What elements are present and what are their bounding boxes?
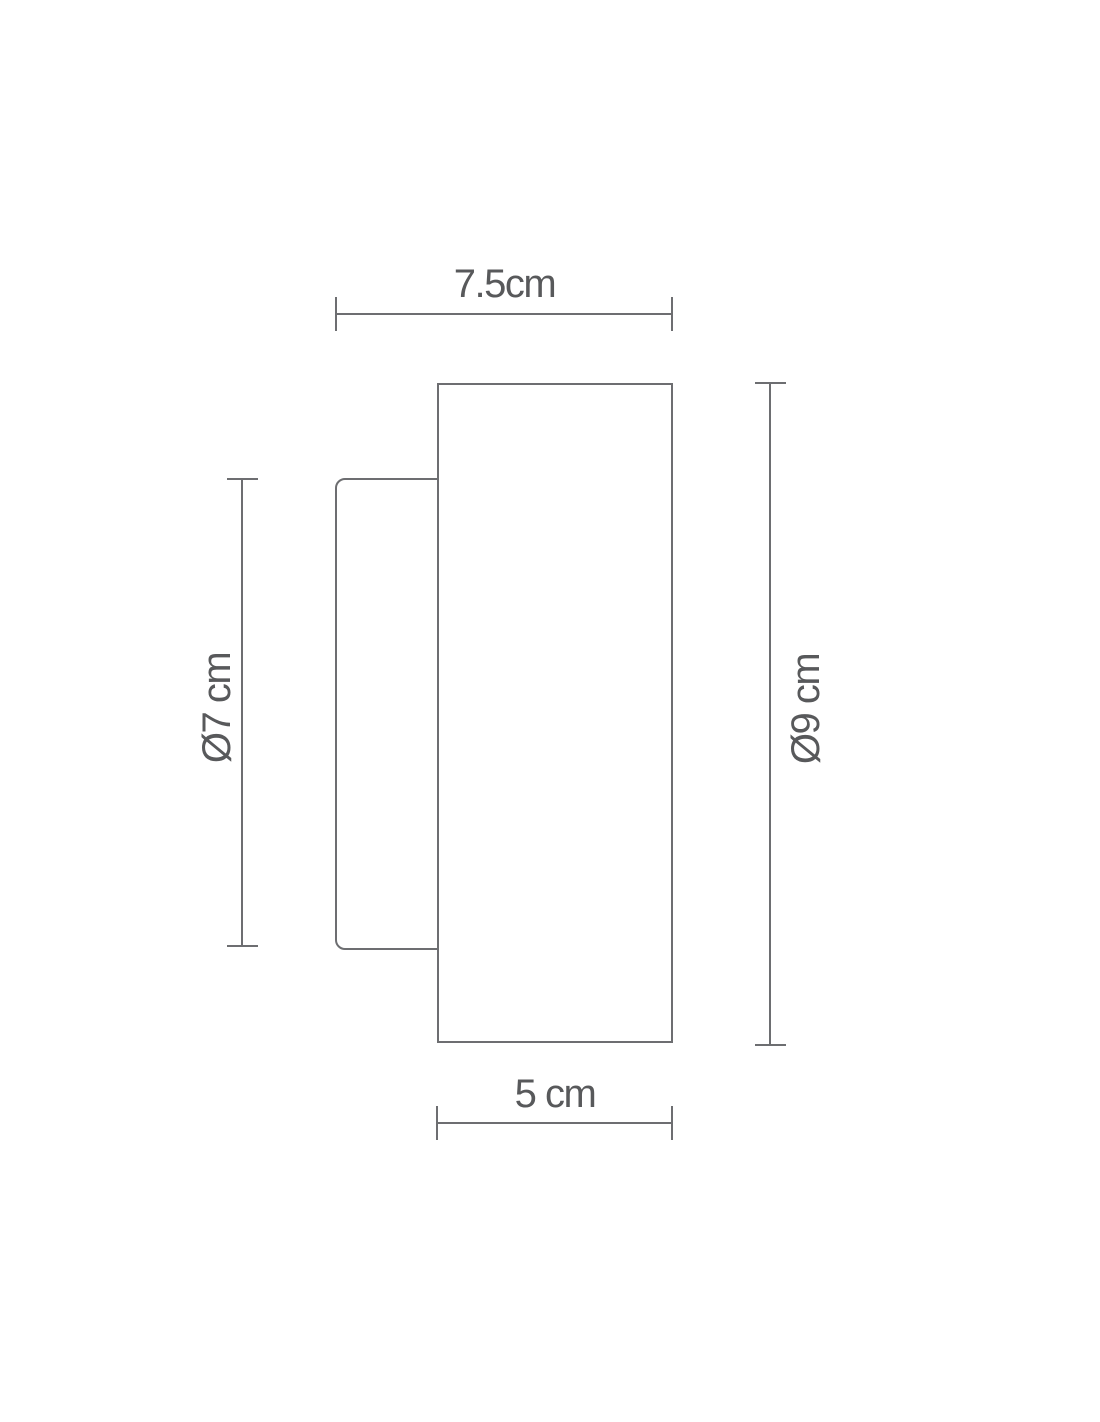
body-height-dimension-line	[769, 383, 771, 1046]
lamp-body-outline	[437, 383, 673, 1043]
top-width-dimension-label: 7.5cm	[336, 264, 673, 304]
plate-height-dimension-tick-bottom	[227, 945, 258, 947]
plate-height-dimension-label: Ø7 cm	[197, 653, 237, 763]
top-width-dimension-tick-right	[671, 297, 673, 331]
body-width-dimension-line	[437, 1122, 673, 1124]
body-width-dimension-tick-right	[671, 1106, 673, 1140]
body-height-dimension-tick-top	[755, 382, 786, 384]
plate-height-dimension-tick-top	[227, 478, 258, 480]
body-width-dimension-label: 5 cm	[437, 1074, 673, 1114]
top-width-dimension-tick-left	[335, 297, 337, 331]
dimension-diagram: 7.5cm 5 cm Ø7 cm Ø9 cm	[0, 0, 1100, 1422]
mounting-plate-outline	[335, 478, 439, 950]
top-width-dimension-line	[336, 313, 673, 315]
body-height-dimension-tick-bottom	[755, 1044, 786, 1046]
plate-height-dimension-line	[241, 479, 243, 947]
body-width-dimension-tick-left	[436, 1106, 438, 1140]
body-height-dimension-label: Ø9 cm	[786, 654, 826, 764]
